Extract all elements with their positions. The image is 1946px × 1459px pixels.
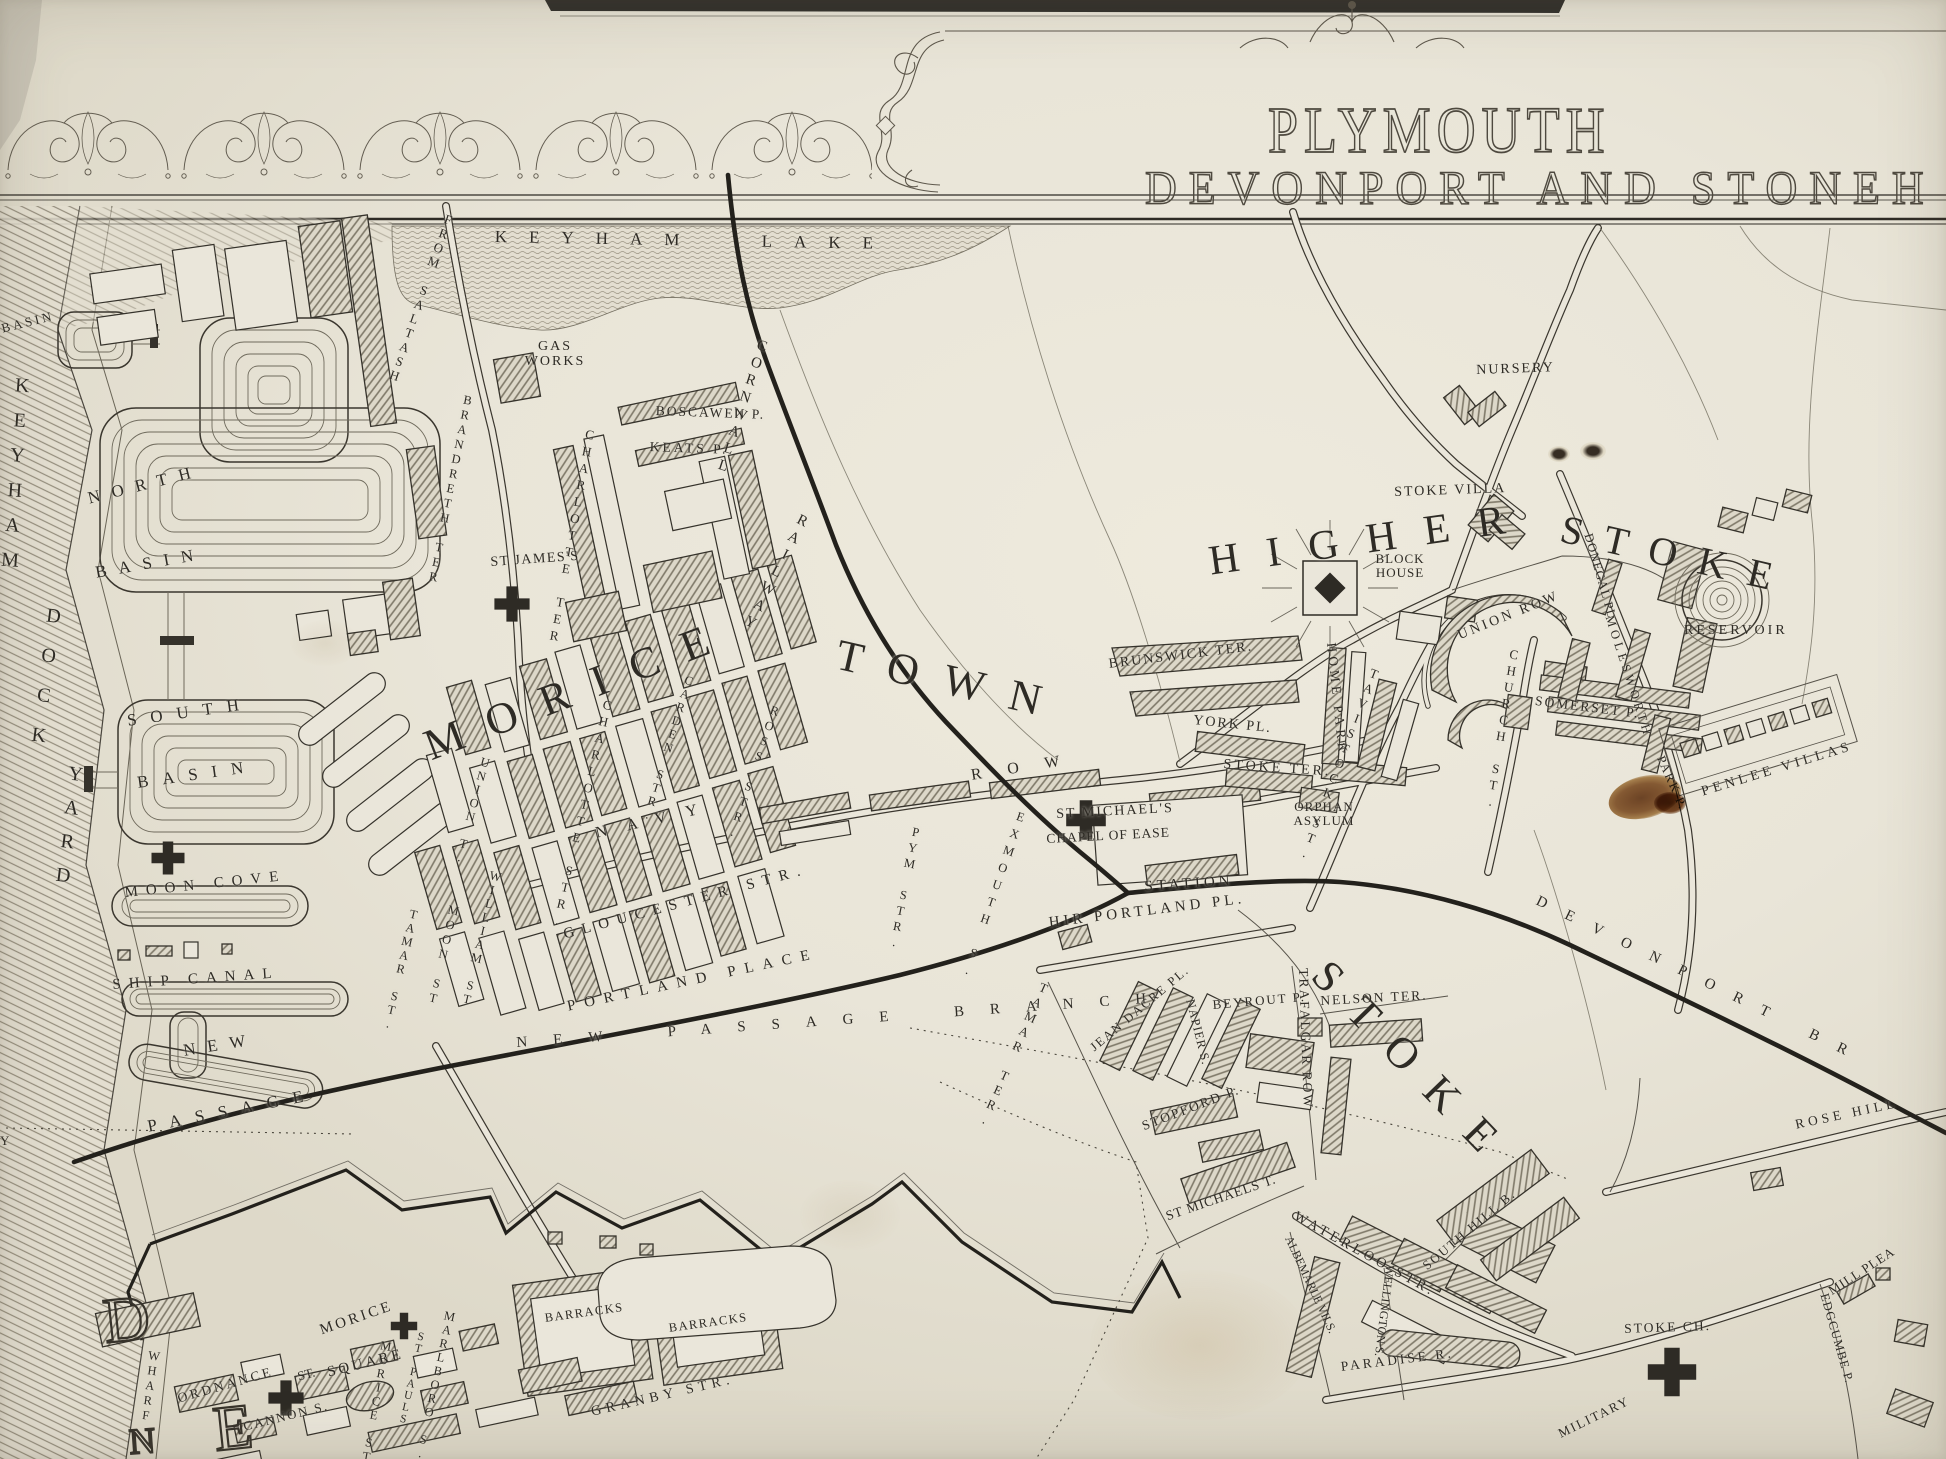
antique-map-sheet: PLYMOUTH DEVONPORT AND STONEH BASIN KEYH… bbox=[0, 0, 1946, 1459]
label-block-house: BLOCK HOUSE bbox=[1358, 552, 1442, 579]
label-stoke-ch: STOKE CH. bbox=[1624, 1319, 1711, 1336]
stoke-church-cross-icon bbox=[1648, 1348, 1696, 1396]
label-orphan-asylum: ORPHAN ASYLUM bbox=[1276, 800, 1372, 827]
label-nursery: NURSERY bbox=[1476, 361, 1555, 378]
lower-stoke-blocks bbox=[1100, 982, 1933, 1427]
label-reservoir: RESERVOIR bbox=[1684, 624, 1788, 639]
label-giant-n: N bbox=[128, 1422, 157, 1459]
map-canvas bbox=[0, 0, 1946, 1459]
st-pauls-cross-icon bbox=[391, 1313, 417, 1339]
label-y-fragment: Y bbox=[0, 1134, 9, 1148]
title-corner-scroll bbox=[876, 32, 944, 192]
label-keats: KEATS P. bbox=[650, 440, 729, 457]
map-title: PLYMOUTH bbox=[1268, 96, 1611, 165]
label-gas-works: GAS WORKS bbox=[510, 340, 600, 369]
dockyard-chapel-cross-icon bbox=[152, 842, 185, 875]
st-james-church-cross-icon bbox=[494, 586, 529, 621]
label-giant-e: E bbox=[210, 1392, 256, 1459]
map-subtitle: DEVONPORT AND STONEH bbox=[1145, 164, 1936, 214]
label-giant-d: D bbox=[100, 1283, 153, 1355]
